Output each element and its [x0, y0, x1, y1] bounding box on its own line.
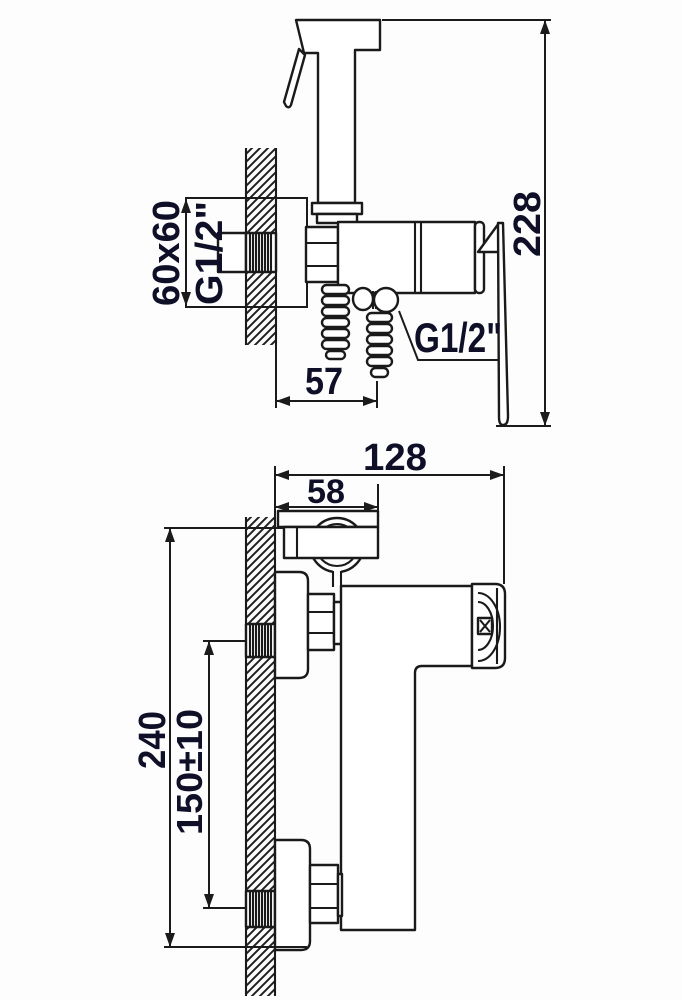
- plate-size-label: 60x60: [146, 200, 188, 306]
- upper-hex-nut: [308, 594, 334, 650]
- dimension-58-label: 58: [307, 473, 345, 511]
- hex-nut: [306, 227, 338, 282]
- sprayer-trigger: [284, 49, 305, 107]
- lower-wall-thread: [246, 891, 275, 927]
- hose-swivel-joint: [353, 288, 398, 312]
- sprayer-hose-coil: [322, 285, 349, 359]
- plate-thread-label: G1/2": [189, 201, 231, 305]
- dimension-150-10-label: 150±10: [169, 709, 210, 835]
- lower-hex-nut: [310, 865, 338, 923]
- lower-plate-assembly: [275, 840, 342, 950]
- outlet-thread-callout: G1/2": [399, 311, 502, 361]
- side-view: 228 57 60x60 G1/2" G1/2": [146, 20, 551, 426]
- front-view: 128 58 240 150±10: [132, 437, 505, 996]
- sprayer-collar: [312, 203, 362, 214]
- dimension-57-label: 57: [305, 361, 343, 403]
- mixer-installation-drawing: 228 57 60x60 G1/2" G1/2": [0, 0, 682, 1000]
- technical-drawing-page: 228 57 60x60 G1/2" G1/2": [0, 0, 682, 1000]
- mixer-body-front: [341, 584, 505, 930]
- spray-holder-cup: [472, 584, 505, 668]
- dimension-240-label: 240: [132, 711, 174, 769]
- upper-plate-assembly: [275, 572, 342, 678]
- supply-hose-coil: [367, 313, 392, 377]
- dimension-150-10: 150±10: [169, 641, 247, 908]
- upper-wall-thread: [246, 624, 275, 657]
- dimension-228-label: 228: [507, 191, 549, 257]
- outlet-thread-label: G1/2": [414, 314, 502, 361]
- hand-sprayer: [284, 20, 380, 223]
- dimension-128-label: 128: [363, 437, 427, 479]
